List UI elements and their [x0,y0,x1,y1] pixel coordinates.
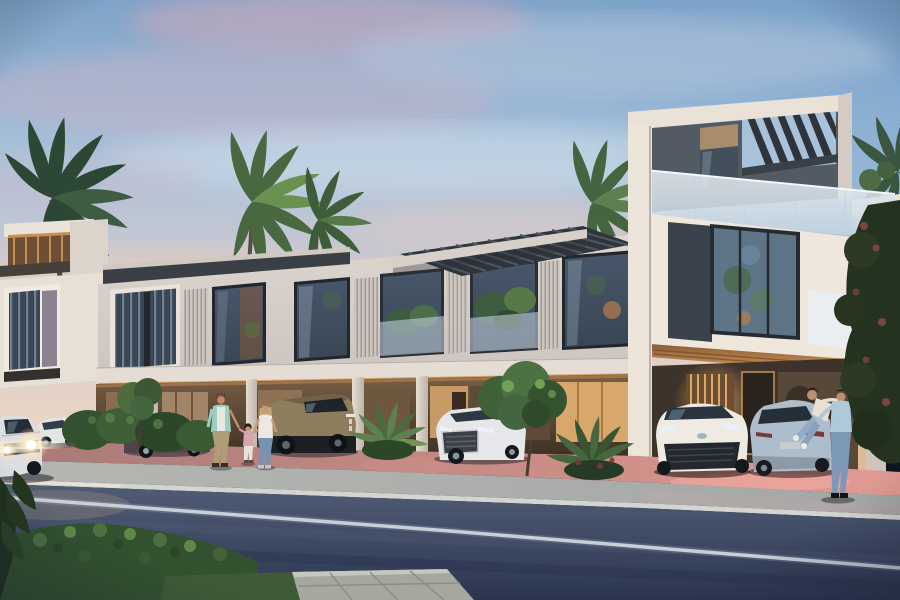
dusk-townhouse-scene: Dusk exterior rendering of a modern whit… [0,0,900,600]
render-canvas: Dusk exterior rendering of a modern whit… [0,0,900,600]
vignette [0,0,900,600]
